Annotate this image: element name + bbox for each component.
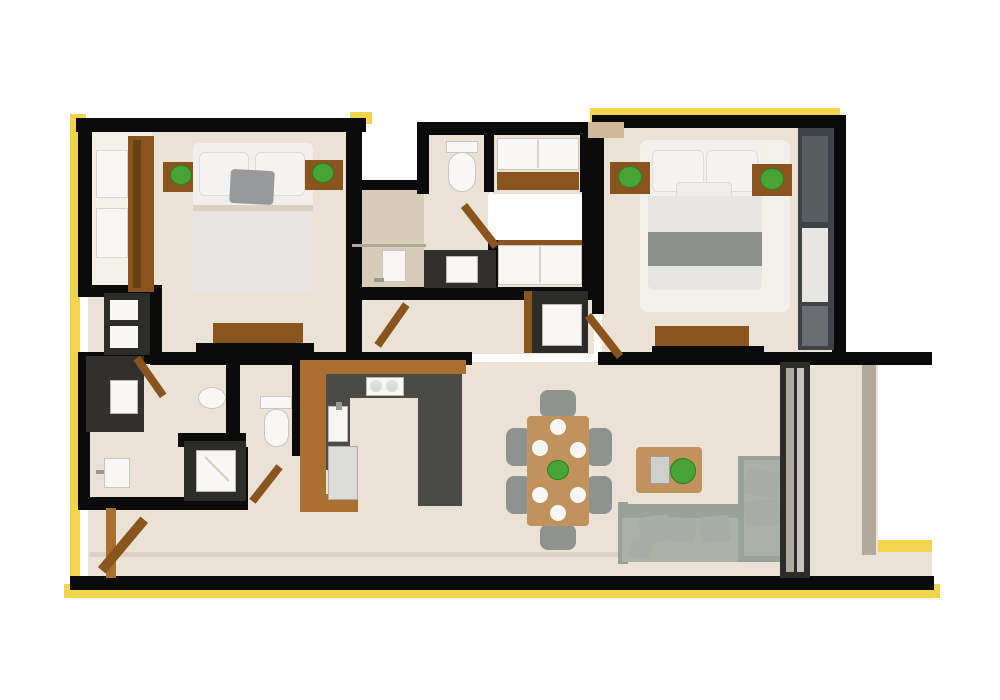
wall-corridor-column (150, 285, 162, 364)
plate-3 (570, 442, 586, 458)
dining-chair-right-1 (586, 428, 612, 466)
plant-bed1-left (170, 165, 192, 185)
dining-chair-right-2 (586, 476, 612, 514)
dining-centerpiece-plant (547, 460, 569, 480)
shower-1-arm (374, 278, 384, 282)
bath2-basin-oval (198, 387, 226, 409)
fridge (328, 446, 358, 500)
tv-bed2 (652, 346, 764, 355)
terrace-railing (862, 365, 876, 555)
shower-1-glass (352, 244, 426, 247)
bed1-duvet (193, 205, 313, 293)
toilet-2-bowl (264, 409, 289, 447)
plant-bed1-right (312, 163, 334, 183)
toilet-2-tank (260, 396, 292, 409)
laundry-closet-wood-edge (524, 291, 532, 353)
kitchen-counter-right (418, 374, 462, 506)
slider-door-glass-1 (786, 368, 794, 572)
slider-door-frame (780, 362, 810, 578)
window-box-pane-1 (110, 300, 138, 320)
dining-chair-bottom (540, 524, 576, 550)
shower-1-fixture (382, 250, 406, 282)
sofa-cushion-3 (699, 515, 731, 544)
plant-bed2-right (760, 168, 784, 190)
toilet-1-bowl (448, 152, 476, 192)
bed1-duvet-fold (193, 205, 313, 211)
wall-living-top (598, 352, 932, 365)
plate-5 (570, 487, 586, 503)
vanity-1-sink (446, 256, 478, 283)
wardrobe-bed1 (128, 136, 154, 292)
sofa-cushion-2 (667, 517, 697, 544)
vanity-2-sink (110, 380, 138, 414)
closet-shelf-bottom (96, 208, 128, 258)
tv-bed1 (196, 343, 314, 353)
kitchen-faucet (336, 402, 342, 410)
closet-a-divider (537, 140, 539, 168)
wall-toilet-closet-divider (484, 130, 494, 192)
floor-plan (0, 0, 1000, 700)
wall-bed2-right (832, 115, 846, 365)
wall-bath1-top (417, 122, 595, 135)
wardrobe-bed1-inner (133, 140, 141, 288)
bath2-fixture (104, 458, 130, 488)
bulkhead-bed2-corner (588, 122, 624, 138)
bed1-throw-pillow (229, 169, 275, 205)
plate-4 (532, 487, 548, 503)
closet-bed2-shelf-mid (802, 228, 828, 302)
bath2-fixture-arm (96, 470, 104, 474)
closet-bed2-shelf-top (802, 136, 828, 222)
dining-chair-top (540, 390, 576, 418)
stove-burner-2 (386, 380, 398, 392)
sofa-cushion-5 (744, 498, 781, 527)
plant-bed2-left (618, 166, 642, 188)
plate-2 (532, 440, 548, 456)
laundry-appliance (542, 304, 582, 346)
shower-2-tray (196, 450, 236, 492)
wall-south (70, 576, 934, 590)
closet-bed2-shelf-bottom (802, 306, 828, 346)
window-box-pane-2 (110, 326, 138, 348)
kitchen-sink (328, 406, 348, 442)
wall-bed1-right (346, 118, 362, 364)
wall-shower-top (346, 180, 428, 190)
kitchen-wood-left (300, 360, 326, 510)
plate-1 (550, 419, 566, 435)
closet-a-shelf (497, 172, 579, 190)
sofa-cushion-4 (743, 467, 781, 499)
wall-bed1-top (76, 118, 366, 132)
wall-bed2-top (592, 115, 838, 128)
coffee-table-tray (650, 456, 670, 484)
floor-terrace-bottom (804, 552, 932, 578)
floor-plan-canvas (0, 0, 1000, 700)
bed2-blanket (648, 232, 762, 266)
coffee-table-plant (670, 458, 696, 484)
stove-burner-1 (370, 380, 382, 392)
slider-door-glass-2 (797, 368, 804, 572)
closet-b-divider (539, 247, 541, 283)
closet-shelf-top (96, 150, 128, 198)
wall-bed1-left (78, 125, 92, 297)
plate-6 (550, 505, 566, 521)
bed2-duvet-bottom (648, 266, 762, 290)
wall-bed2-left (592, 128, 604, 314)
